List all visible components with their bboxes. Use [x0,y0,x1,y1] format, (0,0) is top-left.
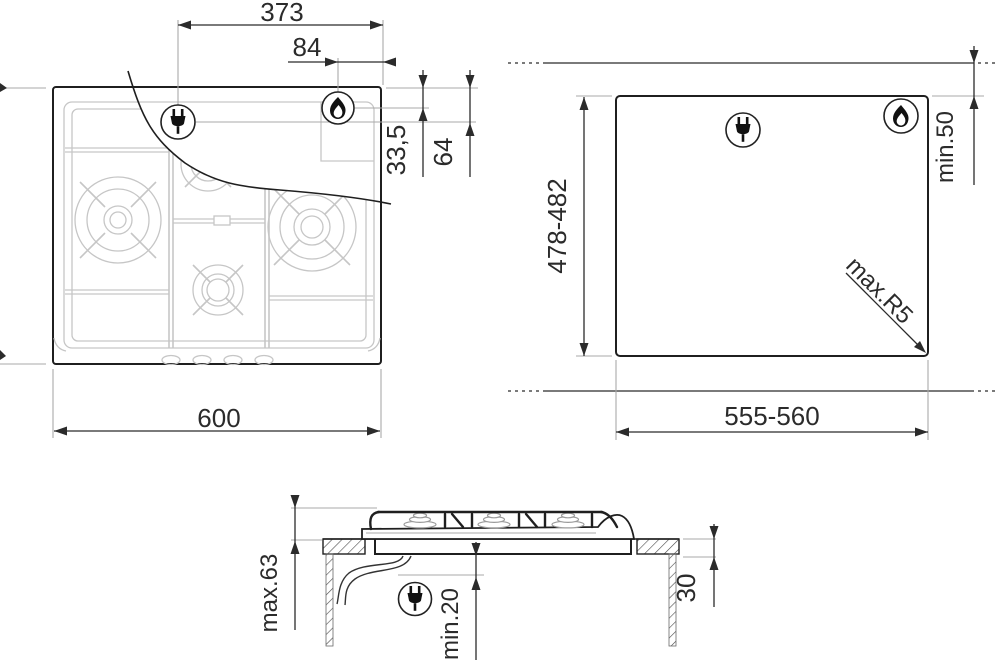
power-plug-icon [726,113,760,147]
cut-arrow-fragment-top [0,83,7,92]
cutout-rectangle [616,96,928,356]
worktop-cutout-view: 478-482 min.50 max.R5 555-560 [508,46,999,440]
dim-label-hob-width: 600 [197,403,240,433]
worktop-section-right [637,539,679,554]
dim-label-clearance-below: min.20 [437,588,464,660]
burner-front-left [75,177,161,263]
worktop-section-left [323,539,365,554]
dim-label-cutout-depth: 478-482 [542,178,572,273]
break-curve [128,71,391,204]
dim-label-rear-clearance: min.50 [932,111,959,183]
dim-label-counter-thickness: 30 [671,574,701,603]
hob-tub-section [375,539,631,554]
cabinet-wall-left [326,554,333,646]
dim-label-height-above: max.63 [256,554,283,633]
hob-top-view: 373 84 33,5 64 600 [0,0,478,438]
cut-arrow-fragment-bottom [0,350,6,360]
technical-drawing: 373 84 33,5 64 600 [0,0,1000,665]
hob-surface-graphics [65,102,373,348]
power-plug-icon [399,583,432,616]
dim-label-cutout-width: 555-560 [724,401,819,431]
burner-caps-section [404,513,584,528]
power-cable [337,556,403,604]
dim-label-gas-offset: 84 [293,32,322,62]
burner-front-centre [193,265,243,315]
dim-label-gas-depth: 33,5 [381,125,411,176]
gas-flame-icon [322,92,354,124]
dim-label-plug-depth: 64 [428,138,458,167]
installation-side-view: max.63 min.20 30 [256,495,719,660]
dim-label-plug-offset: 373 [260,0,303,27]
gas-flame-icon [884,99,918,133]
power-plug-icon [161,105,195,139]
dim-label-corner-radius: max.R5 [841,252,919,330]
technical-drawing-page: 373 84 33,5 64 600 [0,0,1000,665]
